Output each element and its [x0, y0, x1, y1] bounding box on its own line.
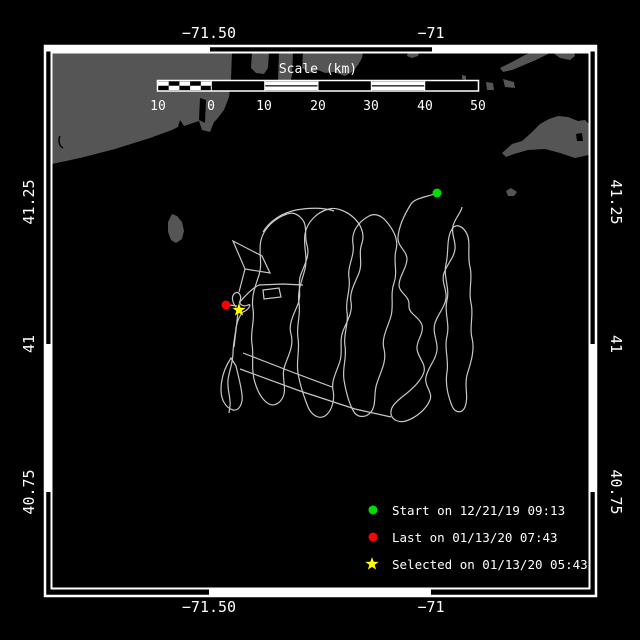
axis-label-bottom-lon2: −71: [417, 598, 444, 616]
map-figure: −71.50 −71 −71.50 −71 41.25 41 40.75 41.…: [0, 0, 640, 640]
legend-start-label: Start on 12/21/19 09:13: [392, 503, 565, 518]
axis-label-right-lat3: 40.75: [607, 469, 625, 514]
last-marker[interactable]: [222, 301, 231, 310]
scalebar-tick-0: 10: [150, 99, 166, 114]
axis-label-right-lat2: 41: [607, 335, 625, 353]
legend-last-label: Last on 01/13/20 07:43: [392, 530, 558, 545]
axis-label-left-lat1: 41.25: [20, 179, 38, 224]
scalebar-seg-midline-2: [371, 85, 424, 86]
legend-last-marker: [369, 533, 378, 542]
scalebar-tick-2: 10: [256, 99, 272, 114]
scalebar-tick-3: 20: [310, 99, 326, 114]
scalebar-tick-5: 40: [417, 99, 433, 114]
axis-label-bottom-lon1: −71.50: [182, 598, 236, 616]
legend: Start on 12/21/19 09:13 Last on 01/13/20…: [365, 503, 587, 572]
islet-2: [486, 82, 494, 90]
axis-label-left-lat3: 40.75: [20, 469, 38, 514]
pond-inlet: [199, 98, 206, 123]
scalebar-title: Scale (km): [279, 62, 357, 77]
se-island-notch: [576, 133, 583, 141]
scalebar-tick-1: 0: [207, 99, 215, 114]
axis-label-right-lat1: 41.25: [607, 179, 625, 224]
axis-label-top-lon1: −71.50: [182, 24, 236, 42]
legend-start-marker: [369, 506, 378, 515]
start-marker[interactable]: [433, 189, 442, 198]
scalebar-seg-midline-1: [265, 85, 318, 86]
axis-label-top-lon2: −71: [417, 24, 444, 42]
frame-band-bottom-mid: [209, 589, 431, 596]
scalebar-tick-6: 50: [470, 99, 486, 114]
axis-label-left-lat2: 41: [20, 335, 38, 353]
scalebar-tick-4: 30: [363, 99, 379, 114]
legend-selected-label: Selected on 01/13/20 05:43: [392, 557, 588, 572]
